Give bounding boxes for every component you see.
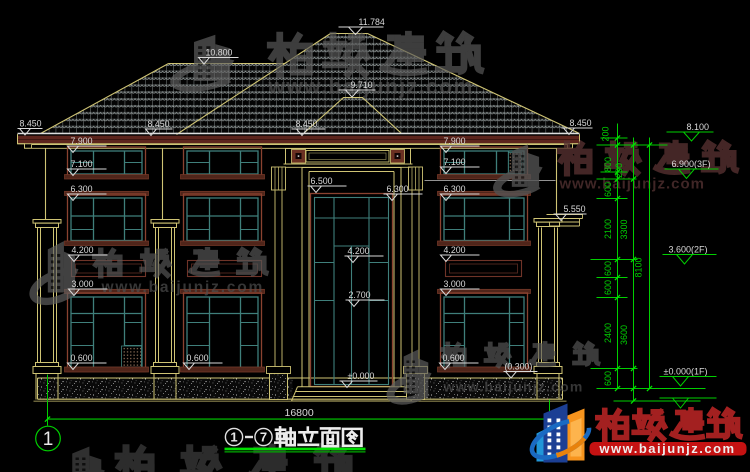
svg-text:8.450: 8.450 xyxy=(20,119,42,129)
svg-text:±0.000: ±0.000 xyxy=(348,371,375,381)
svg-text:4.200: 4.200 xyxy=(348,246,370,256)
svg-text:16800: 16800 xyxy=(285,407,314,419)
svg-text:3300: 3300 xyxy=(619,219,629,239)
svg-text:10.800: 10.800 xyxy=(206,48,233,58)
svg-text:6.500: 6.500 xyxy=(311,176,333,186)
svg-text:600: 600 xyxy=(603,261,613,276)
svg-text:3.000: 3.000 xyxy=(72,279,94,289)
svg-text:6.300: 6.300 xyxy=(71,184,93,194)
svg-text:7: 7 xyxy=(260,430,267,445)
svg-text:8100: 8100 xyxy=(634,257,644,277)
svg-text:0.600: 0.600 xyxy=(443,353,465,363)
svg-text:7.100: 7.100 xyxy=(71,159,93,169)
svg-text:7.900: 7.900 xyxy=(71,136,93,146)
svg-text:3.600(2F): 3.600(2F) xyxy=(669,245,708,255)
svg-text:4.200: 4.200 xyxy=(72,245,94,255)
svg-text:www.baijunjz.com: www.baijunjz.com xyxy=(598,441,735,456)
svg-text:7.100: 7.100 xyxy=(444,157,466,167)
svg-text:9.710: 9.710 xyxy=(351,80,373,90)
svg-text:600: 600 xyxy=(603,280,613,295)
svg-text:200: 200 xyxy=(614,163,624,178)
svg-text:5.550: 5.550 xyxy=(564,204,586,214)
svg-text:8.100: 8.100 xyxy=(687,122,710,132)
svg-text:200: 200 xyxy=(601,126,611,141)
svg-text:6.900(3F): 6.900(3F) xyxy=(672,159,711,169)
svg-text:3600: 3600 xyxy=(619,325,629,345)
svg-text:4.200: 4.200 xyxy=(444,245,466,255)
svg-text:2100: 2100 xyxy=(603,219,613,239)
svg-text:7.900: 7.900 xyxy=(444,136,466,146)
svg-text:2.700: 2.700 xyxy=(349,290,371,300)
svg-text:(0.300): (0.300) xyxy=(505,362,533,372)
svg-text:www.baijunjz.com: www.baijunjz.com xyxy=(101,279,265,296)
svg-text:8.450: 8.450 xyxy=(570,118,592,128)
svg-text:0.600: 0.600 xyxy=(187,353,209,363)
svg-text:600: 600 xyxy=(603,371,613,386)
svg-text:6.300: 6.300 xyxy=(387,184,409,194)
svg-text:8.450: 8.450 xyxy=(296,119,318,129)
svg-text:www.baijunjz.com: www.baijunjz.com xyxy=(443,379,584,395)
svg-text:±0.000(1F): ±0.000(1F) xyxy=(664,367,708,377)
svg-text:8.450: 8.450 xyxy=(148,119,170,129)
svg-text:800: 800 xyxy=(603,157,613,172)
svg-text:600: 600 xyxy=(603,182,613,197)
svg-text:1: 1 xyxy=(230,430,237,445)
svg-text:2400: 2400 xyxy=(603,323,613,343)
svg-text:6.300: 6.300 xyxy=(444,184,466,194)
svg-text:3.000: 3.000 xyxy=(444,279,466,289)
svg-text:www.baijunjz.com: www.baijunjz.com xyxy=(559,176,705,193)
svg-text:11.784: 11.784 xyxy=(359,17,385,27)
svg-text:1: 1 xyxy=(43,429,54,450)
svg-text:0.600: 0.600 xyxy=(71,353,93,363)
